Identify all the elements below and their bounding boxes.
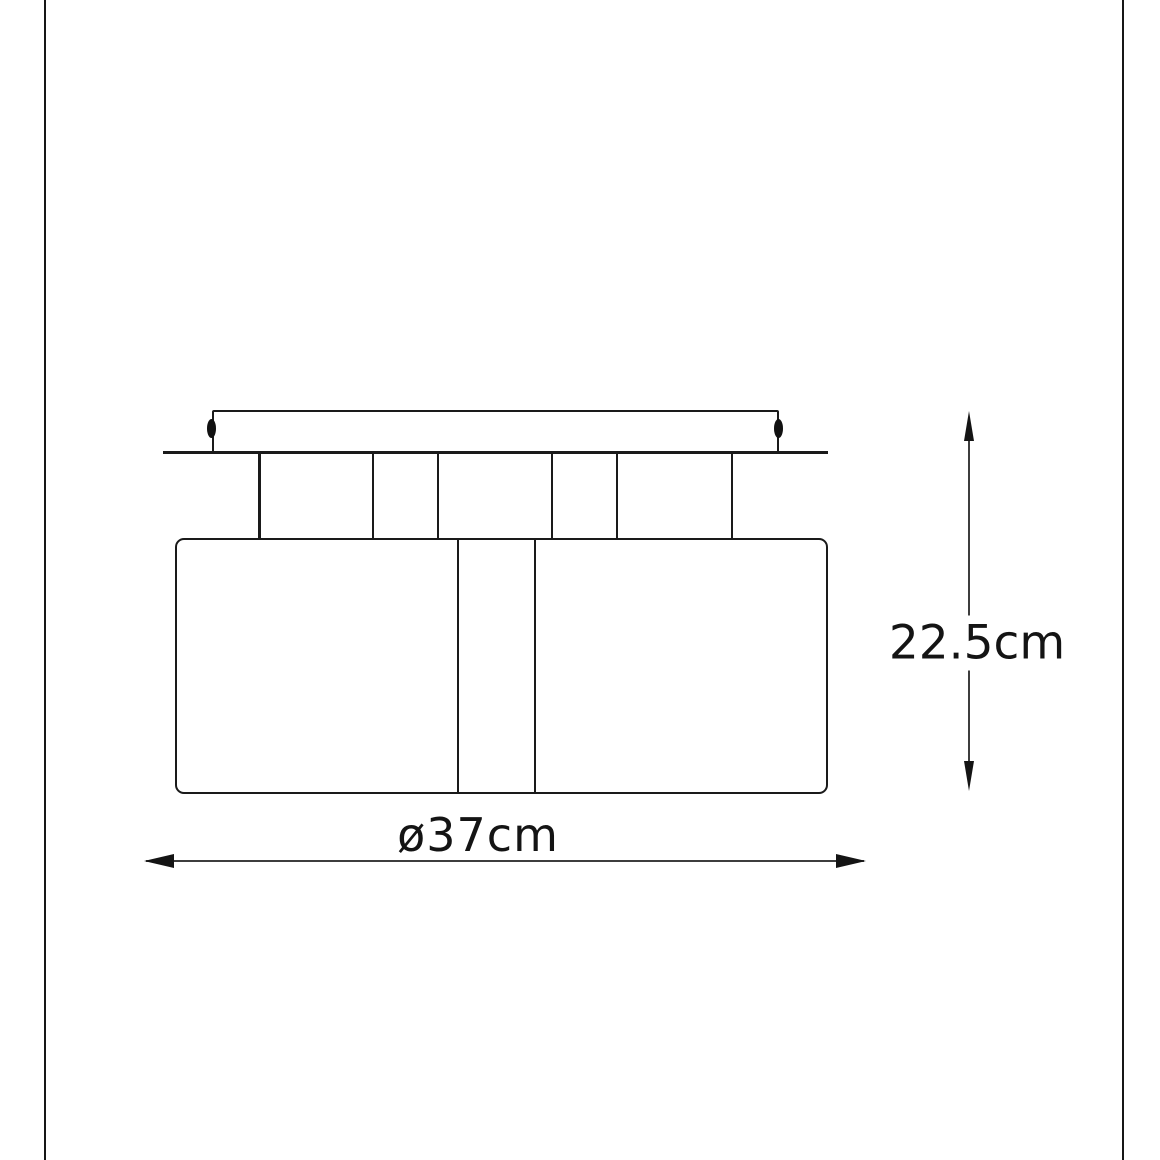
arrowhead-right-icon: [836, 854, 866, 868]
height-dimension-line: [968, 436, 970, 766]
lamp-stem-1: [258, 454, 261, 539]
shade-divider-right: [534, 540, 537, 792]
lamp-stem-2: [372, 454, 375, 539]
arrowhead-left-icon: [144, 854, 174, 868]
mount-screw-right-icon: [774, 419, 783, 438]
mount-screw-left-icon: [207, 419, 216, 438]
diagram-canvas: 22.5cm ø37cm: [0, 0, 1160, 1160]
right-frame-border: [1122, 0, 1124, 1160]
left-frame-border: [44, 0, 46, 1160]
ceiling-mount-plate: [212, 410, 779, 453]
lamp-shades-outline: [175, 538, 828, 794]
diameter-dimension-label: ø37cm: [397, 812, 559, 858]
lamp-stem-6: [731, 454, 734, 539]
lamp-stem-3: [437, 454, 440, 539]
shade-divider-left: [457, 540, 460, 792]
ceiling-line: [163, 451, 828, 455]
lamp-stem-4: [551, 454, 554, 539]
lamp-stem-5: [616, 454, 619, 539]
arrowhead-up-icon: [964, 411, 974, 441]
arrowhead-down-icon: [964, 761, 974, 791]
height-dimension-label: 22.5cm: [885, 616, 1069, 671]
